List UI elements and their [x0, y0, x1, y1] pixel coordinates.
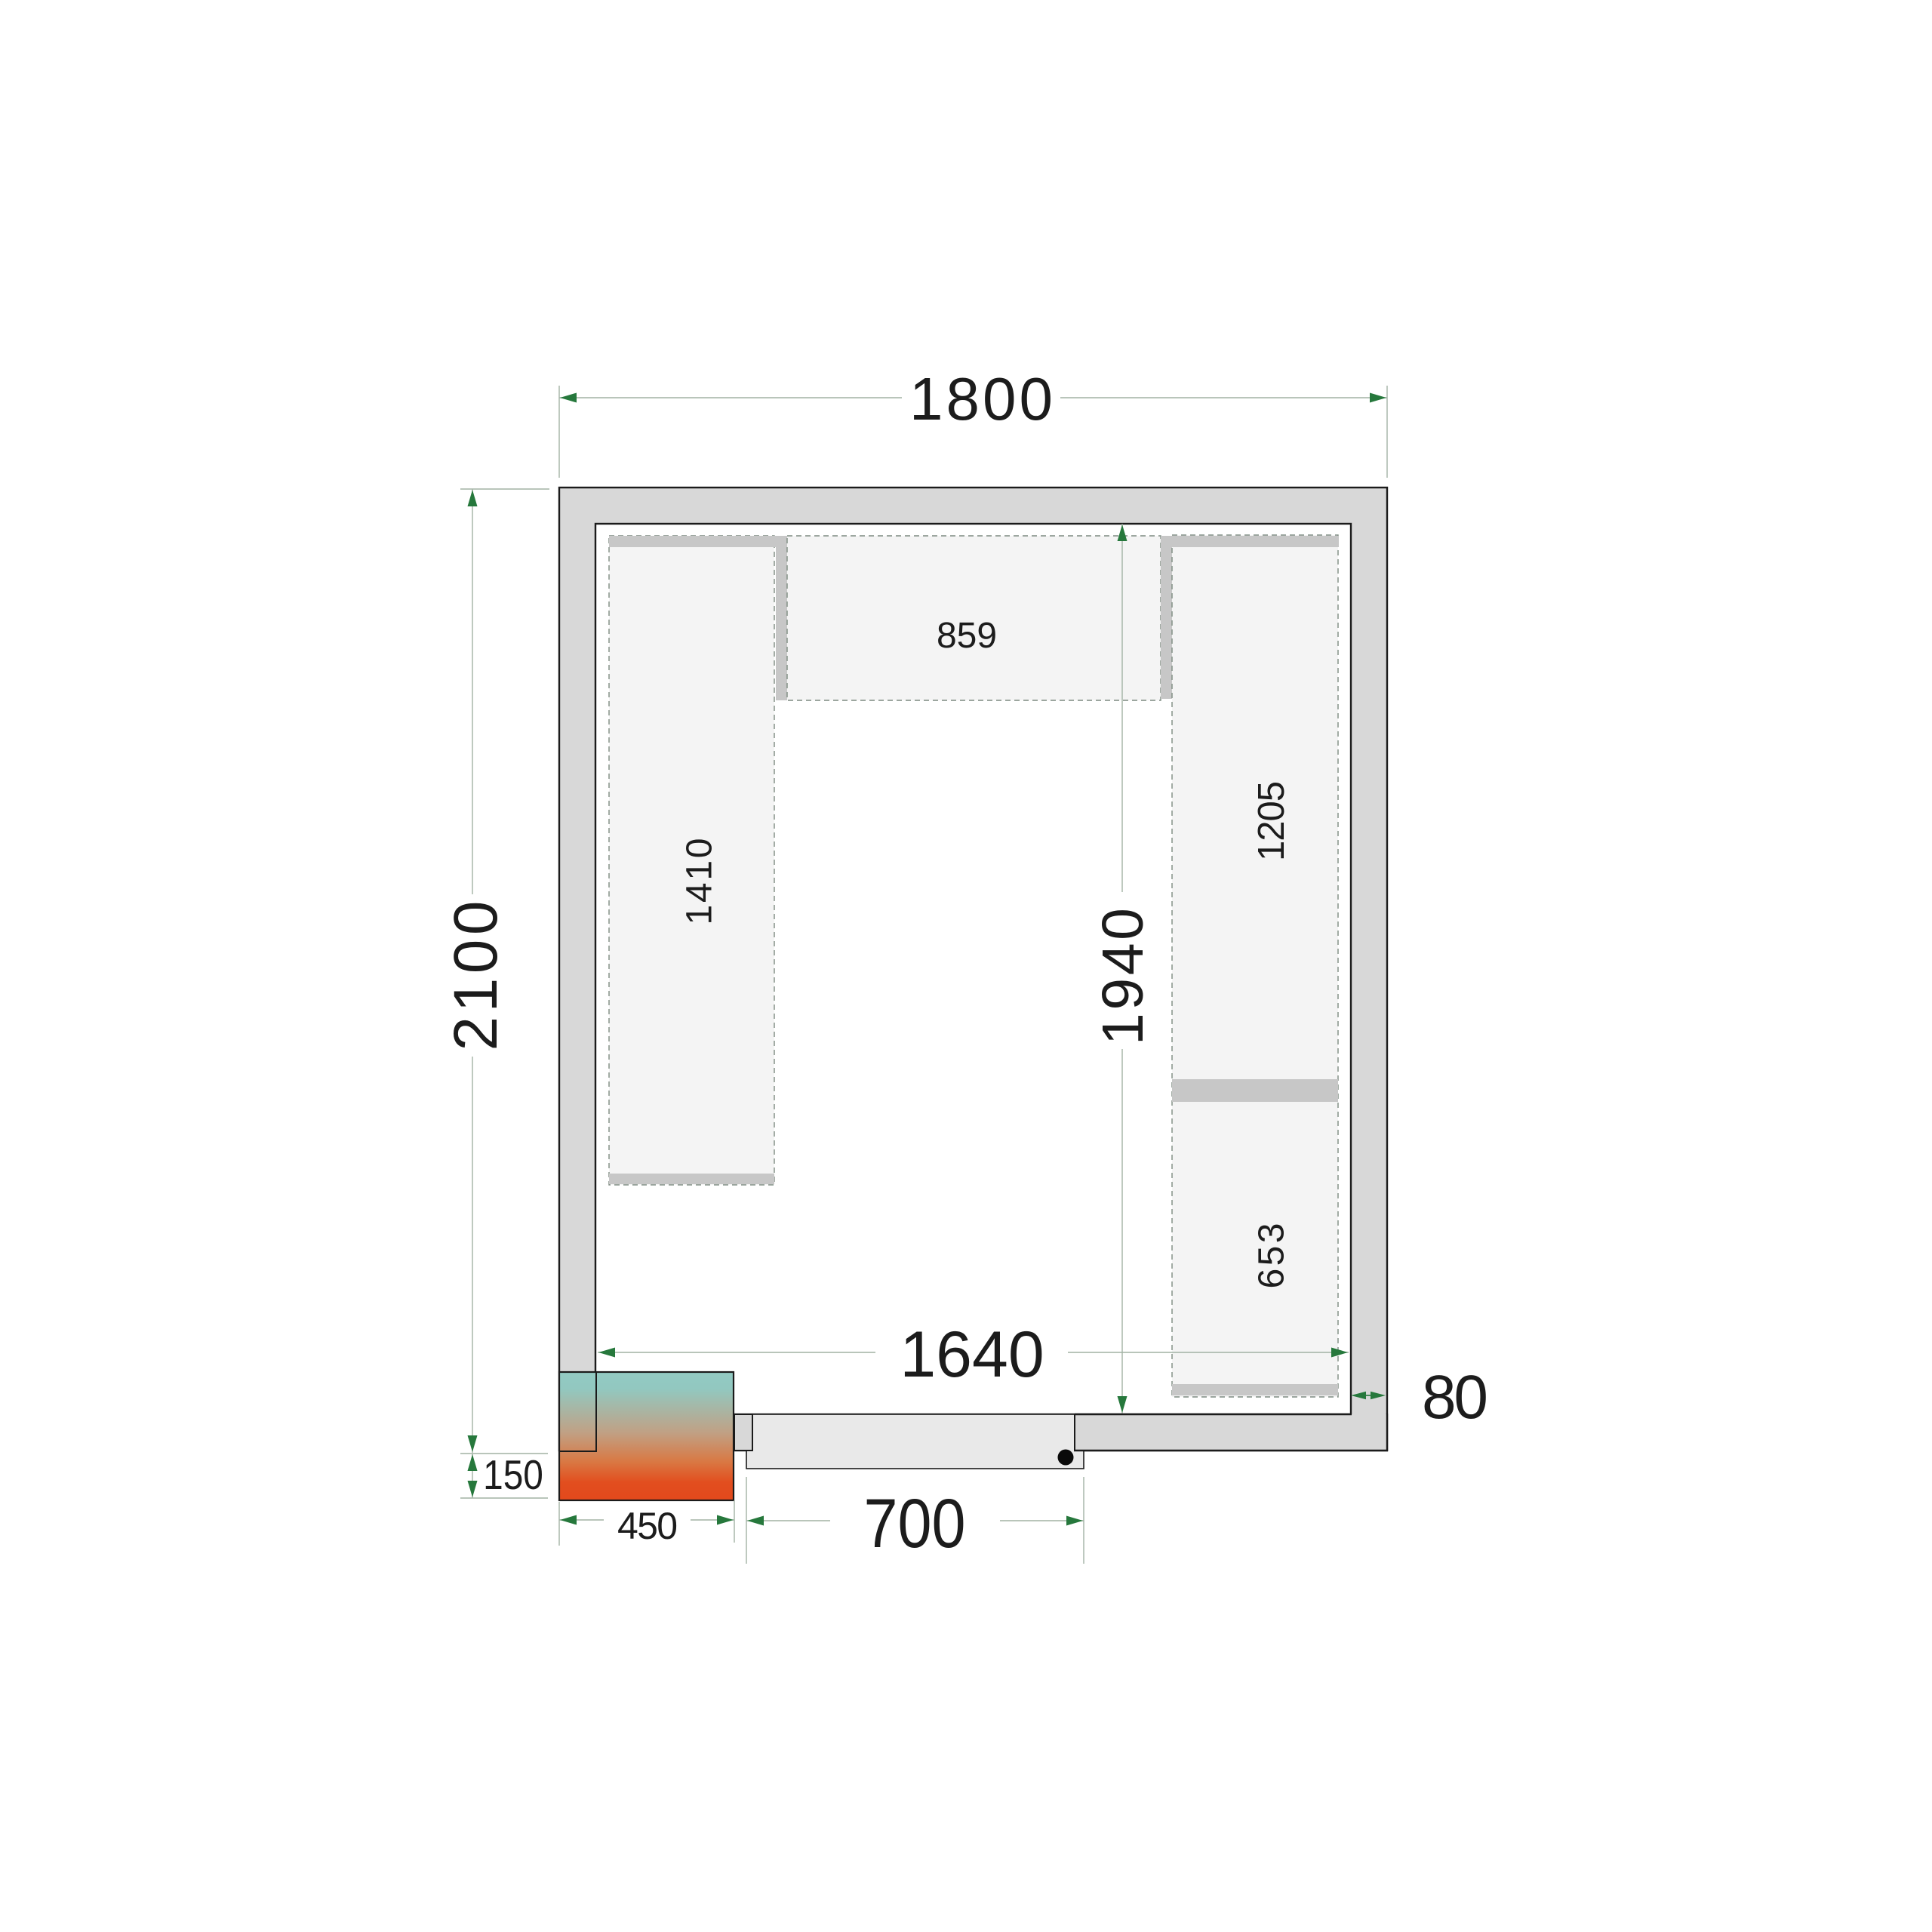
svg-text:1640: 1640	[900, 1318, 1044, 1391]
svg-text:450: 450	[617, 1505, 678, 1547]
svg-text:80: 80	[1422, 1363, 1488, 1432]
svg-text:653: 653	[1252, 1223, 1292, 1289]
svg-text:1205: 1205	[1251, 781, 1292, 861]
svg-text:700: 700	[863, 1485, 965, 1562]
svg-text:150: 150	[483, 1451, 543, 1498]
svg-text:859: 859	[937, 616, 997, 656]
